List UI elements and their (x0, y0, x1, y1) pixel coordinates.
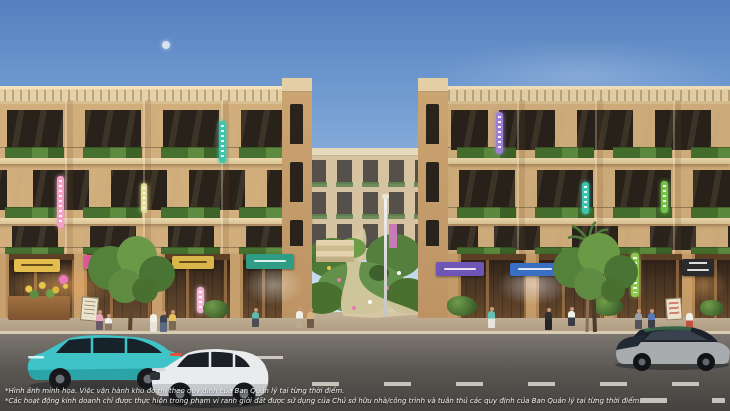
street-lamp (384, 198, 387, 316)
storefront-sign-teal (246, 254, 294, 269)
tower-window (426, 220, 439, 246)
moon (162, 41, 170, 49)
street-render-scene: *Hình ảnh minh họa. Việc vận hành khu đô… (0, 0, 730, 411)
pedestrian (488, 311, 495, 328)
neon-sign-teal-left (219, 121, 226, 163)
hedge-planter (700, 300, 724, 316)
lane-marking (240, 382, 730, 386)
disclaimer-line-1: *Hình ảnh minh họa. Việc vận hành khu đô… (5, 388, 344, 395)
pedestrian (296, 311, 303, 328)
tower-window (290, 220, 303, 246)
lane-marking (640, 398, 725, 403)
hedge-planter (447, 296, 477, 316)
shop-glow (244, 264, 304, 306)
shop-signboard (665, 297, 682, 320)
storefront-sign-yellow-1 (14, 259, 60, 272)
flower-bouquets (18, 280, 72, 298)
pedestrian (307, 312, 314, 328)
neon-sign-teal-right (582, 182, 589, 214)
neon-sign-pale-yellow (141, 183, 147, 213)
garden-steps (316, 240, 354, 262)
neon-sign-green (661, 181, 668, 213)
tower-window (426, 162, 439, 202)
storefront-sign-dark (682, 259, 714, 276)
tower-parapet (418, 78, 448, 92)
dark-two-tone-suv (612, 320, 730, 372)
pedestrian (568, 311, 575, 326)
tower-window (290, 162, 303, 202)
pedestrian (545, 312, 552, 330)
right-gap-tower (418, 78, 448, 318)
flower-stall (8, 296, 70, 320)
tower-window (290, 104, 303, 144)
neon-sign-pink (57, 176, 64, 228)
lamp-banner (389, 224, 397, 248)
storefront-sign-purple (436, 262, 484, 276)
tower-window (426, 104, 439, 144)
neon-sign-purple (496, 112, 503, 154)
disclaimer-line-2: *Các hoạt động kinh doanh chỉ được thực … (5, 398, 641, 405)
pedestrian (252, 312, 259, 327)
courtyard-garden (304, 218, 426, 318)
tower-parapet (282, 78, 312, 92)
hedge-planter (203, 300, 229, 318)
